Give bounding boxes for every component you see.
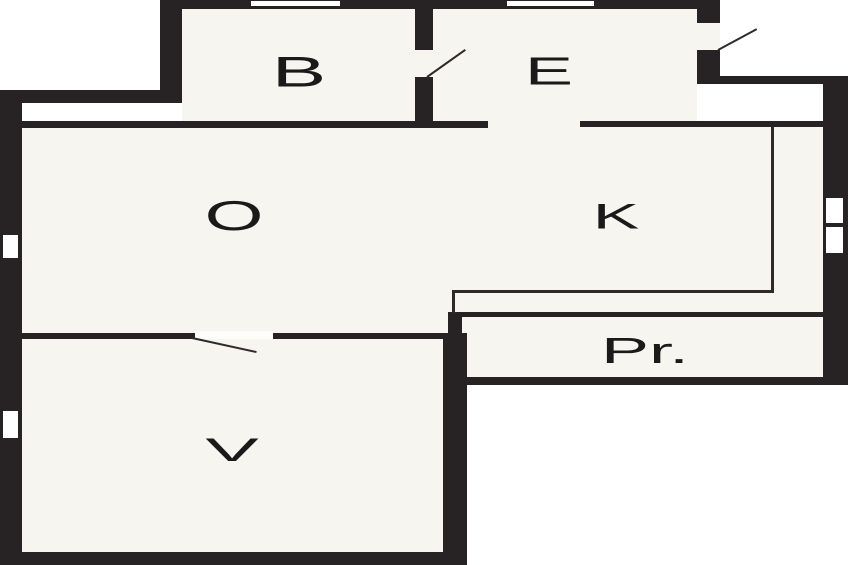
- door-opening-entry: [697, 23, 720, 50]
- room-b-left-wall: [160, 0, 182, 103]
- door-swing-entry: [718, 28, 758, 51]
- floor-plan: B E O K V Pr.: [0, 0, 848, 565]
- room-k-label: K: [593, 200, 640, 235]
- kitchen-boundary-horizontal: [452, 290, 774, 293]
- outer-wall-bottom: [0, 552, 467, 565]
- room-o-top-wall: [22, 121, 488, 128]
- room-pr-top-wall: [448, 312, 848, 317]
- window-right-lower-pane: [826, 227, 843, 253]
- room-v-label: V: [205, 434, 258, 466]
- window-right-upper-pane: [826, 198, 843, 223]
- room-o-label: O: [205, 195, 264, 237]
- room-e-right-wall-upper: [697, 0, 720, 23]
- divider-b-e-lower: [415, 77, 433, 122]
- outer-wall-left: [0, 90, 22, 565]
- window-top-b: [251, 1, 340, 6]
- kitchen-boundary-stub: [452, 292, 455, 313]
- divider-b-e-upper: [415, 9, 433, 50]
- room-e-right-wall-lower: [697, 50, 720, 84]
- window-top-e: [507, 1, 594, 6]
- door-opening-o-v: [195, 331, 273, 339]
- kitchen-boundary-vertical: [771, 127, 774, 292]
- divider-o-v-right: [273, 333, 448, 339]
- window-left-upper: [3, 235, 18, 258]
- divider-o-v-left: [22, 333, 195, 339]
- room-e-label: E: [525, 53, 573, 92]
- room-b-label: B: [272, 52, 327, 95]
- room-k-top-wall: [580, 121, 823, 127]
- room-v-right-wall: [443, 333, 467, 556]
- outer-wall-left-band: [0, 90, 182, 103]
- window-left-lower: [3, 411, 18, 438]
- room-pr-label: Pr.: [601, 333, 689, 369]
- room-pr-bottom-wall: [443, 377, 848, 385]
- outer-wall-top: [160, 0, 720, 9]
